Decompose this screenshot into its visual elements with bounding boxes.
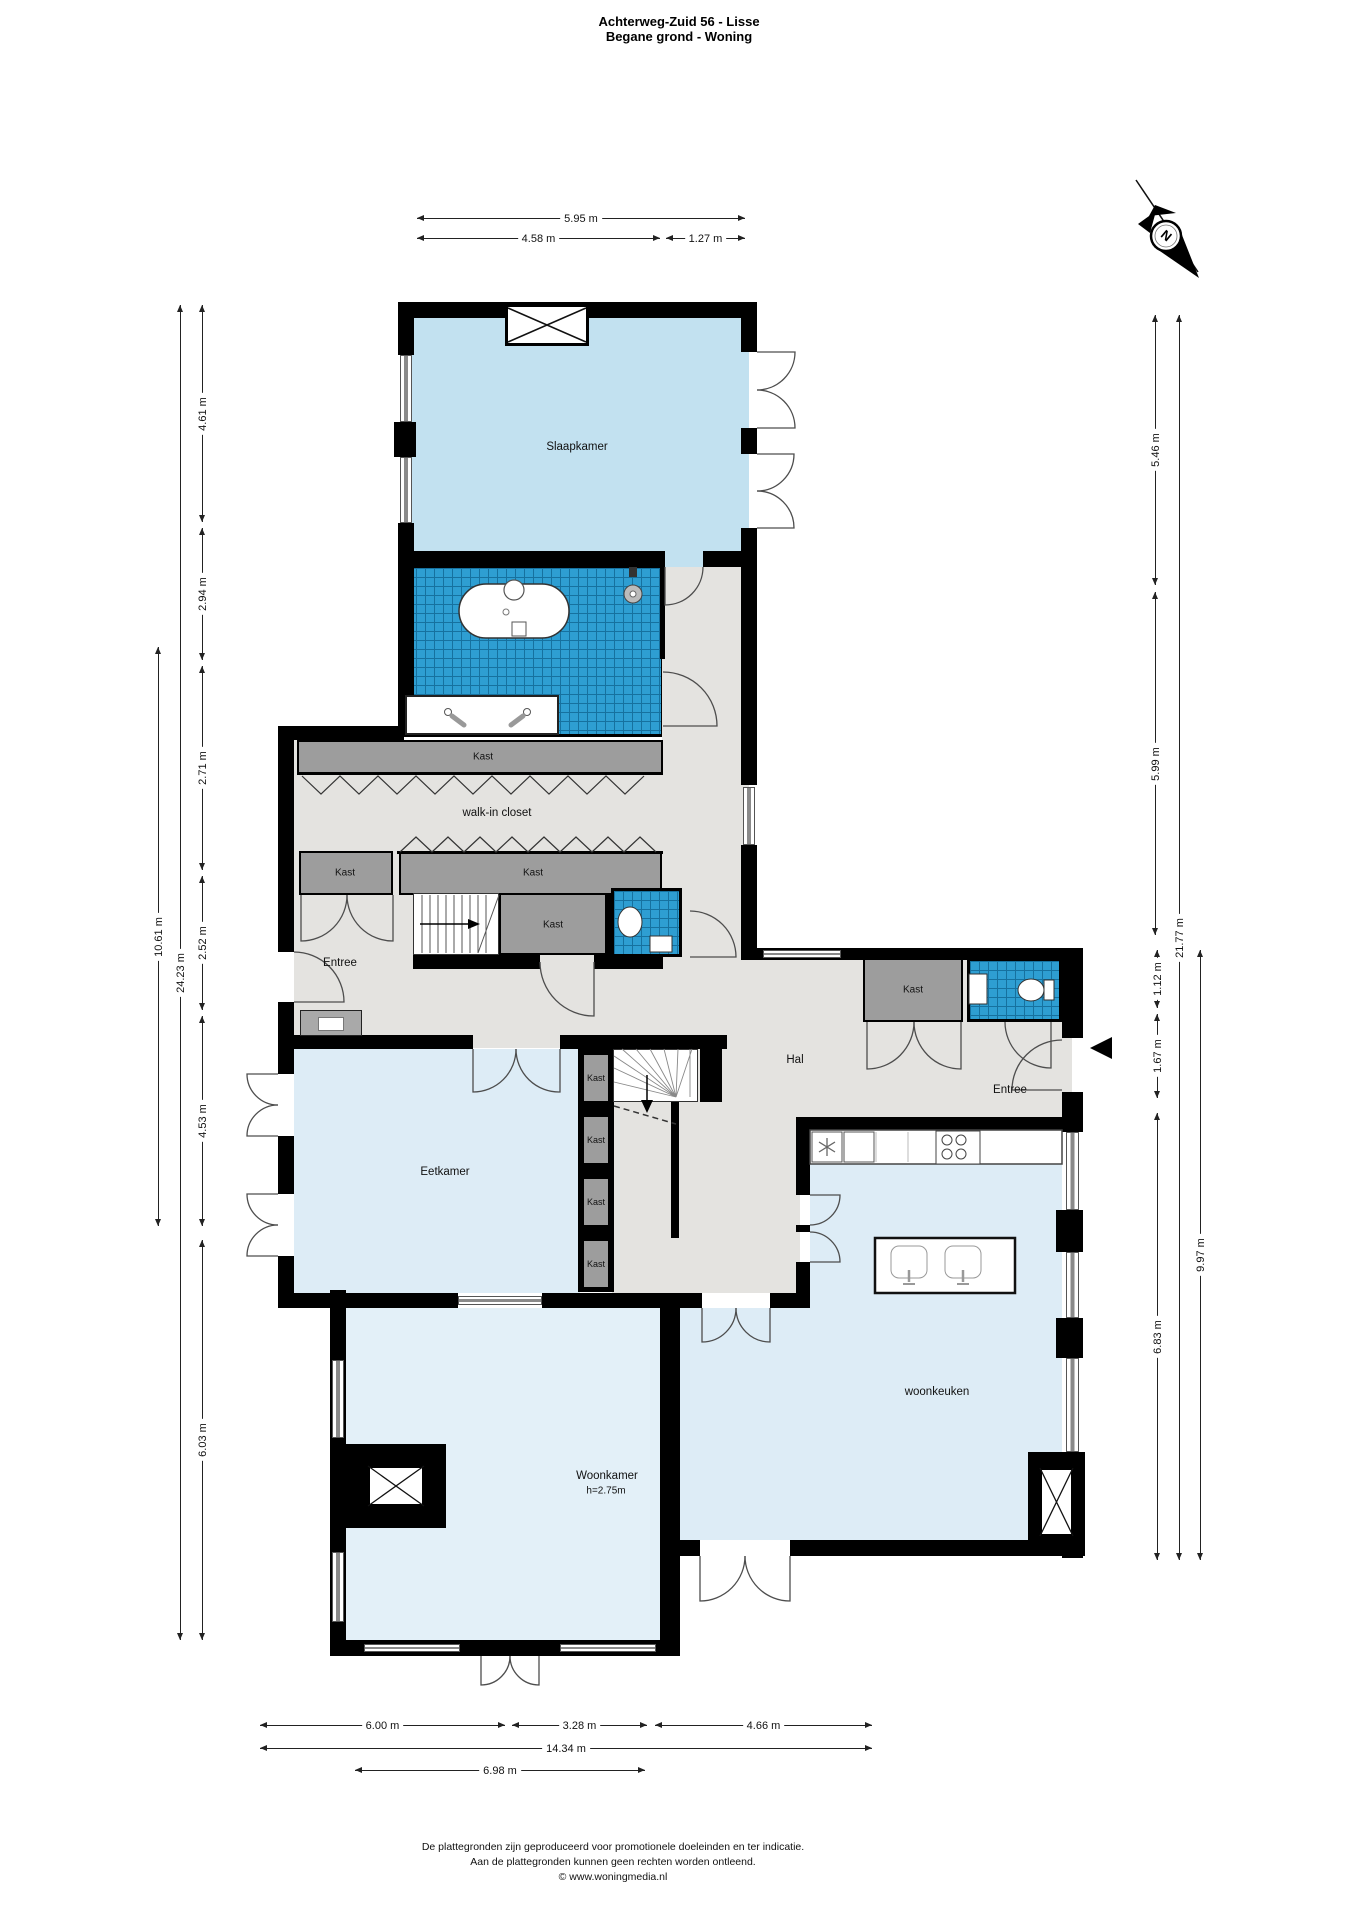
dimension-label: 1.12 m bbox=[1152, 958, 1164, 1000]
wall-segment bbox=[1056, 1210, 1083, 1252]
footer-line-1: De plattegronden zijn geproduceerd voor … bbox=[0, 1840, 1226, 1855]
wall-segment bbox=[612, 1035, 727, 1049]
wall-segment bbox=[796, 1225, 810, 1232]
room-woonkeuken bbox=[810, 1143, 1062, 1540]
door-arc bbox=[510, 1656, 539, 1685]
plan-subtitle: Begane grond - Woning bbox=[0, 29, 1358, 44]
footer-copyright: © www.woningmedia.nl bbox=[0, 1870, 1226, 1885]
dimension-label: 4.53 m bbox=[197, 1100, 209, 1142]
door-arc bbox=[247, 1225, 278, 1256]
footer-disclaimer: De plattegronden zijn geproduceerd voor … bbox=[0, 1840, 1226, 1885]
wall-segment bbox=[278, 1256, 294, 1293]
dimension-line: 5.46 m bbox=[1155, 315, 1156, 585]
wall-segment bbox=[278, 1035, 473, 1049]
shaft-inset bbox=[1040, 1468, 1073, 1536]
label-kast: Kast bbox=[903, 985, 923, 996]
compass-wing bbox=[1149, 205, 1176, 216]
door-arc bbox=[757, 390, 795, 428]
door-arc bbox=[247, 1194, 278, 1225]
dimension-line: 21.77 m bbox=[1179, 315, 1180, 1560]
door-arc bbox=[247, 1105, 278, 1136]
wall-segment bbox=[660, 1304, 680, 1656]
label-eetkamer: Eetkamer bbox=[420, 1166, 469, 1178]
dimension-line: 1.27 m bbox=[666, 238, 745, 239]
window bbox=[332, 1552, 344, 1622]
dimension-label: 2.94 m bbox=[197, 573, 209, 615]
wall-segment bbox=[413, 955, 540, 969]
wall-segment bbox=[1062, 948, 1083, 1038]
room-slaapkamer bbox=[406, 310, 749, 567]
door-arc bbox=[481, 1656, 510, 1685]
dimension-label: 2.52 m bbox=[197, 922, 209, 964]
shower-screen bbox=[660, 567, 665, 659]
wall-segment bbox=[278, 1293, 458, 1308]
dimension-label: 24.23 m bbox=[175, 949, 187, 997]
wall-segment bbox=[810, 1117, 1062, 1130]
wall-segment bbox=[741, 428, 757, 454]
wall-segment bbox=[741, 585, 757, 785]
door-arc bbox=[700, 1556, 745, 1601]
wall-segment bbox=[796, 1262, 810, 1308]
dimension-label: 1.27 m bbox=[685, 233, 727, 245]
dimension-line: 4.61 m bbox=[202, 305, 203, 522]
dimension-label: 6.83 m bbox=[1152, 1316, 1164, 1358]
label-entree-left: Entree bbox=[323, 957, 357, 969]
dimension-line: 10.61 m bbox=[158, 647, 159, 1226]
label-kast: Kast bbox=[473, 752, 493, 763]
wall-segment bbox=[671, 1102, 679, 1238]
dimension-label: 6.00 m bbox=[362, 1720, 404, 1732]
label-entree-right: Entree bbox=[993, 1084, 1027, 1096]
window bbox=[743, 787, 755, 845]
dimension-line: 5.99 m bbox=[1155, 592, 1156, 935]
label-slaapkamer: Slaapkamer bbox=[546, 441, 607, 453]
dimension-line: 2.94 m bbox=[202, 528, 203, 660]
dimension-line: 14.34 m bbox=[260, 1748, 872, 1749]
window bbox=[400, 457, 412, 523]
dimension-label: 4.66 m bbox=[743, 1720, 785, 1732]
dimension-label: 5.46 m bbox=[1150, 429, 1162, 471]
fireplace-inset bbox=[368, 1466, 424, 1506]
footer-line-2: Aan de plattegronden kunnen geen rechten… bbox=[0, 1855, 1226, 1870]
window bbox=[1066, 1132, 1079, 1210]
wall-segment bbox=[398, 318, 414, 355]
dimension-label: 9.97 m bbox=[1195, 1234, 1207, 1276]
dimension-label: 3.28 m bbox=[559, 1720, 601, 1732]
room-badkamer-tiles bbox=[404, 565, 664, 737]
dimension-line: 1.67 m bbox=[1157, 1014, 1158, 1098]
dimension-line: 6.83 m bbox=[1157, 1113, 1158, 1560]
door-arc bbox=[757, 352, 795, 390]
door-arc bbox=[757, 491, 794, 528]
window bbox=[560, 1644, 656, 1652]
dimension-line: 4.58 m bbox=[417, 238, 660, 239]
room-woonkeuken-annex bbox=[680, 1308, 810, 1540]
wall-segment bbox=[560, 1035, 612, 1049]
entree-mat bbox=[300, 1010, 362, 1036]
dimension-label: 14.34 m bbox=[542, 1743, 590, 1755]
wall-segment bbox=[703, 551, 757, 567]
wall-segment bbox=[741, 845, 757, 948]
label-kast: Kast bbox=[523, 868, 543, 879]
dimension-line: 5.95 m bbox=[417, 218, 745, 219]
label-woonkeuken: woonkeuken bbox=[905, 1386, 970, 1398]
label-kast: Kast bbox=[587, 1073, 605, 1083]
door-arc bbox=[745, 1556, 790, 1601]
wall-segment bbox=[278, 1136, 294, 1194]
room-toilet-2 bbox=[967, 958, 1062, 1022]
label-kast: Kast bbox=[587, 1197, 605, 1207]
wall-segment bbox=[398, 551, 665, 567]
compass-north-letter: N bbox=[1153, 223, 1178, 248]
dimension-line: 9.97 m bbox=[1200, 950, 1201, 1560]
wall-segment bbox=[394, 422, 416, 457]
dimension-label: 5.99 m bbox=[1150, 743, 1162, 785]
wall-segment bbox=[741, 302, 757, 352]
dimension-line: 4.66 m bbox=[655, 1725, 872, 1726]
dimension-line: 1.12 m bbox=[1157, 950, 1158, 1008]
window bbox=[400, 355, 412, 422]
window bbox=[332, 1360, 344, 1438]
wall-segment bbox=[700, 1049, 722, 1102]
wall-segment bbox=[1062, 1092, 1083, 1132]
label-woonkamer-height: h=2.75m bbox=[586, 1486, 625, 1497]
entrance-arrow-icon bbox=[1090, 1037, 1112, 1059]
dimension-line: 24.23 m bbox=[180, 305, 181, 1640]
dimension-label: 6.03 m bbox=[197, 1419, 209, 1461]
window bbox=[364, 1644, 460, 1652]
dimension-label: 4.61 m bbox=[197, 393, 209, 435]
dimension-label: 6.98 m bbox=[479, 1765, 521, 1777]
plan-title-block: Achterweg-Zuid 56 - Lisse Begane grond -… bbox=[0, 14, 1358, 44]
label-walk-in-closet: walk-in closet bbox=[462, 807, 531, 819]
dimension-line: 6.03 m bbox=[202, 1240, 203, 1640]
plan-title: Achterweg-Zuid 56 - Lisse bbox=[0, 14, 1358, 29]
staircase-winder bbox=[613, 1049, 698, 1102]
label-kast: Kast bbox=[335, 868, 355, 879]
door-arc bbox=[247, 1074, 278, 1105]
floorplan-canvas: Achterweg-Zuid 56 - Lisse Begane grond -… bbox=[0, 0, 1358, 1920]
roof-window bbox=[505, 304, 589, 346]
door-arc bbox=[757, 454, 794, 491]
dimension-line: 6.00 m bbox=[260, 1725, 505, 1726]
room-toilet-1 bbox=[611, 888, 682, 957]
staircase-straight bbox=[413, 893, 499, 955]
dimension-line: 4.53 m bbox=[202, 1016, 203, 1226]
dimension-line: 2.52 m bbox=[202, 876, 203, 1010]
dimension-label: 5.95 m bbox=[560, 213, 602, 225]
dimension-line: 3.28 m bbox=[512, 1725, 647, 1726]
window bbox=[1066, 1358, 1079, 1452]
wall-segment bbox=[796, 1117, 810, 1195]
dimension-label: 2.71 m bbox=[197, 747, 209, 789]
wall-segment bbox=[278, 740, 294, 952]
window bbox=[1066, 1252, 1079, 1318]
dimension-label: 21.77 m bbox=[1174, 914, 1186, 962]
label-kast: Kast bbox=[543, 920, 563, 931]
dimension-label: 1.67 m bbox=[1152, 1035, 1164, 1077]
label-kast: Kast bbox=[587, 1135, 605, 1145]
label-kast: Kast bbox=[587, 1259, 605, 1269]
compass-wing bbox=[1138, 211, 1156, 233]
doormat bbox=[318, 1017, 344, 1031]
dimension-line: 6.98 m bbox=[355, 1770, 645, 1771]
wall-segment bbox=[680, 1540, 700, 1556]
dimension-label: 10.61 m bbox=[153, 913, 165, 961]
label-hal: Hal bbox=[786, 1054, 803, 1066]
window bbox=[458, 1296, 542, 1305]
wall-segment bbox=[398, 567, 414, 733]
dimension-line: 2.71 m bbox=[202, 666, 203, 870]
window bbox=[763, 950, 841, 958]
wall-segment bbox=[278, 726, 404, 740]
label-woonkamer: Woonkamer bbox=[576, 1470, 638, 1482]
dimension-label: 4.58 m bbox=[518, 233, 560, 245]
wall-segment bbox=[1056, 1318, 1083, 1358]
